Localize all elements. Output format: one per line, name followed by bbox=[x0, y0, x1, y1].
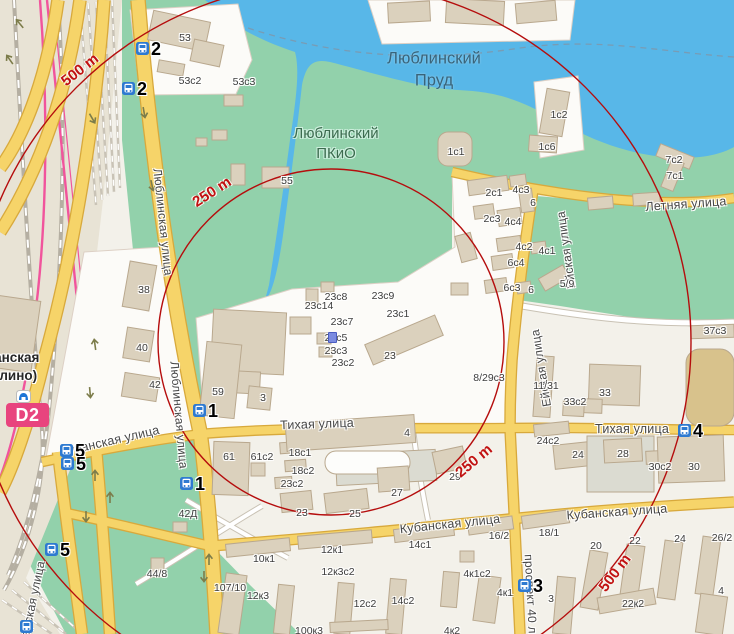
bus-stop-icon[interactable] bbox=[136, 42, 149, 55]
building-label: 18с2 bbox=[292, 465, 315, 477]
building-label: 2с3 bbox=[484, 213, 501, 225]
stop-route-number: 3 bbox=[533, 576, 543, 597]
building-label: 30с2 bbox=[649, 461, 672, 473]
building-label: 8/29с3 bbox=[473, 372, 505, 384]
stop-route-number: 5 bbox=[76, 454, 86, 475]
building-label: 33 bbox=[599, 387, 611, 399]
building-label: 26/2 bbox=[712, 532, 732, 544]
building-label: 53с2 bbox=[179, 75, 202, 87]
building-label: 27 bbox=[391, 487, 403, 499]
building-label: 37с3 bbox=[704, 325, 727, 337]
stop-route-number: 2 bbox=[151, 39, 161, 60]
street-label: Летняя улица bbox=[645, 194, 727, 214]
building-label: 25 bbox=[349, 508, 361, 520]
building-label: 23 bbox=[296, 507, 308, 519]
bus-stop-icon[interactable] bbox=[20, 620, 33, 633]
building-label: 18с1 bbox=[289, 447, 312, 459]
building-label: 23с2 bbox=[281, 478, 304, 490]
building-label: 1с2 bbox=[551, 109, 568, 121]
building-label: 4к2 bbox=[444, 625, 460, 634]
building-label: 23с14 bbox=[305, 300, 334, 312]
transit-stop[interactable]: 5 bbox=[61, 457, 74, 475]
building-label: 6 bbox=[530, 197, 536, 209]
transit-stop[interactable]: 2 bbox=[136, 42, 149, 60]
building-label: 16/2 bbox=[489, 530, 509, 542]
building-label: 6с3 bbox=[504, 282, 521, 294]
building-label: 4с2 bbox=[516, 241, 533, 253]
building-label: 6 bbox=[528, 284, 534, 296]
bus-stop-icon[interactable] bbox=[122, 82, 135, 95]
selected-point-marker[interactable] bbox=[328, 332, 337, 343]
station-name-line1: Кубанская bbox=[0, 350, 39, 365]
building-label: 23с3 bbox=[325, 345, 348, 357]
park-label: Люблинский ПКиО bbox=[293, 124, 378, 165]
building-label: 3 bbox=[260, 392, 266, 404]
distance-label: 500 m bbox=[595, 551, 634, 595]
pond-name-line1: Люблинский bbox=[387, 48, 481, 70]
building-label: 59 bbox=[212, 386, 224, 398]
building-label: 4с1 bbox=[539, 245, 556, 257]
stop-route-number: 2 bbox=[137, 79, 147, 100]
park-name-line2: ПКиО bbox=[293, 144, 378, 164]
stop-route-number: 1 bbox=[208, 401, 218, 422]
building-label: 7с1 bbox=[667, 170, 684, 182]
building-label: 5/9 bbox=[560, 278, 575, 290]
building-label: 23с2 bbox=[332, 357, 355, 369]
street-label: Тихая улица bbox=[280, 416, 354, 433]
pond-name-line2: Пруд bbox=[387, 70, 481, 92]
distance-label: 250 m bbox=[452, 441, 496, 481]
building-label: 2с1 bbox=[486, 187, 503, 199]
building-label: 12к1 bbox=[321, 544, 343, 556]
street-label: Люблинская улица bbox=[167, 361, 190, 470]
building-label: 61с2 bbox=[251, 451, 274, 463]
building-label: 55 bbox=[281, 175, 293, 187]
stop-route-number: 1 bbox=[195, 474, 205, 495]
transit-stop[interactable]: 4 bbox=[678, 424, 691, 442]
building-label: 28 bbox=[617, 448, 629, 460]
building-label: 107/10 bbox=[214, 582, 246, 594]
bus-stop-icon[interactable] bbox=[193, 404, 206, 417]
building-label: 4с4 bbox=[505, 216, 522, 228]
building-label: 23с1 bbox=[387, 308, 410, 320]
building-label: 38 bbox=[138, 284, 150, 296]
building-label: 10к1 bbox=[253, 553, 275, 565]
transit-stop[interactable]: 3 bbox=[518, 579, 531, 597]
building-label: 24 bbox=[572, 449, 584, 461]
street-label: Кубанская улица bbox=[399, 512, 501, 536]
building-label: 14с1 bbox=[409, 539, 432, 551]
bus-stop-icon[interactable] bbox=[60, 444, 73, 457]
pond-label: Люблинский Пруд bbox=[387, 48, 481, 93]
map-canvas[interactable]: Люблинская улицаЛюблинская улицаКубанска… bbox=[0, 0, 734, 634]
building-label: 42 bbox=[149, 379, 161, 391]
building-label: 12с2 bbox=[354, 598, 377, 610]
building-label: 4к1с2 bbox=[463, 568, 490, 580]
building-label: 22 bbox=[629, 535, 641, 547]
map-labels: Люблинская улицаЛюблинская улицаКубанска… bbox=[0, 0, 734, 634]
suburban-station-icon[interactable] bbox=[16, 390, 31, 403]
building-label: 3 bbox=[548, 593, 554, 605]
building-label: 4 bbox=[404, 427, 410, 439]
transit-stop[interactable] bbox=[20, 620, 33, 634]
bus-stop-icon[interactable] bbox=[61, 457, 74, 470]
building-label: 40 bbox=[136, 342, 148, 354]
building-label: 53с3 bbox=[233, 76, 256, 88]
building-label: 23с7 bbox=[331, 316, 354, 328]
building-label: 33с2 bbox=[564, 396, 587, 408]
street-label: Люблинская улица bbox=[150, 168, 175, 277]
building-label: 53 bbox=[179, 32, 191, 44]
station-name-line2: (Люблино) bbox=[0, 368, 37, 383]
building-label: 100к3 bbox=[295, 625, 323, 634]
bus-stop-icon[interactable] bbox=[45, 543, 58, 556]
park-name-line1: Люблинский bbox=[293, 124, 378, 144]
stop-route-number: 5 bbox=[60, 540, 70, 561]
building-label: 18/1 bbox=[539, 527, 559, 539]
transit-stop[interactable]: 5 bbox=[45, 543, 58, 561]
building-label: 30 bbox=[688, 461, 700, 473]
transit-stop[interactable]: 2 bbox=[122, 82, 135, 100]
building-label: 4 bbox=[718, 585, 724, 597]
building-label: 14с2 bbox=[392, 595, 415, 607]
building-label: 23с9 bbox=[372, 290, 395, 302]
building-label: 12к3с2 bbox=[321, 566, 354, 578]
building-label: 12к3 bbox=[247, 590, 269, 602]
building-label: 22к2 bbox=[622, 598, 644, 610]
building-label: 24с2 bbox=[537, 435, 560, 447]
building-label: 42Д bbox=[179, 508, 198, 520]
distance-label: 250 m bbox=[190, 173, 235, 210]
transit-stop[interactable]: 1 bbox=[180, 477, 193, 495]
bus-stop-icon[interactable] bbox=[678, 424, 691, 437]
distance-label: 500 m bbox=[58, 50, 102, 90]
street-label: Ейская улица bbox=[528, 328, 554, 407]
street-label: Тихая улица bbox=[595, 422, 669, 436]
d2-line-badge[interactable]: D2 bbox=[6, 403, 49, 427]
building-label: 1с1 bbox=[448, 146, 465, 158]
building-label: 44/8 bbox=[147, 568, 167, 580]
building-label: 24 bbox=[674, 533, 686, 545]
building-label: 7с2 bbox=[666, 154, 683, 166]
transit-stop[interactable]: 1 bbox=[193, 404, 206, 422]
bus-stop-icon[interactable] bbox=[518, 579, 531, 592]
building-label: 4с3 bbox=[513, 184, 530, 196]
building-label: 6с4 bbox=[508, 257, 525, 269]
building-label: 11/31 bbox=[533, 380, 559, 392]
building-label: 61 bbox=[223, 451, 235, 463]
stop-route-number: 4 bbox=[693, 421, 703, 442]
building-label: 4к1 bbox=[497, 587, 513, 599]
building-label: 23 bbox=[384, 350, 396, 362]
building-label: 1с6 bbox=[539, 141, 556, 153]
building-label: 20 bbox=[590, 540, 602, 552]
bus-stop-icon[interactable] bbox=[180, 477, 193, 490]
street-label: Кубанская улица bbox=[566, 501, 668, 522]
